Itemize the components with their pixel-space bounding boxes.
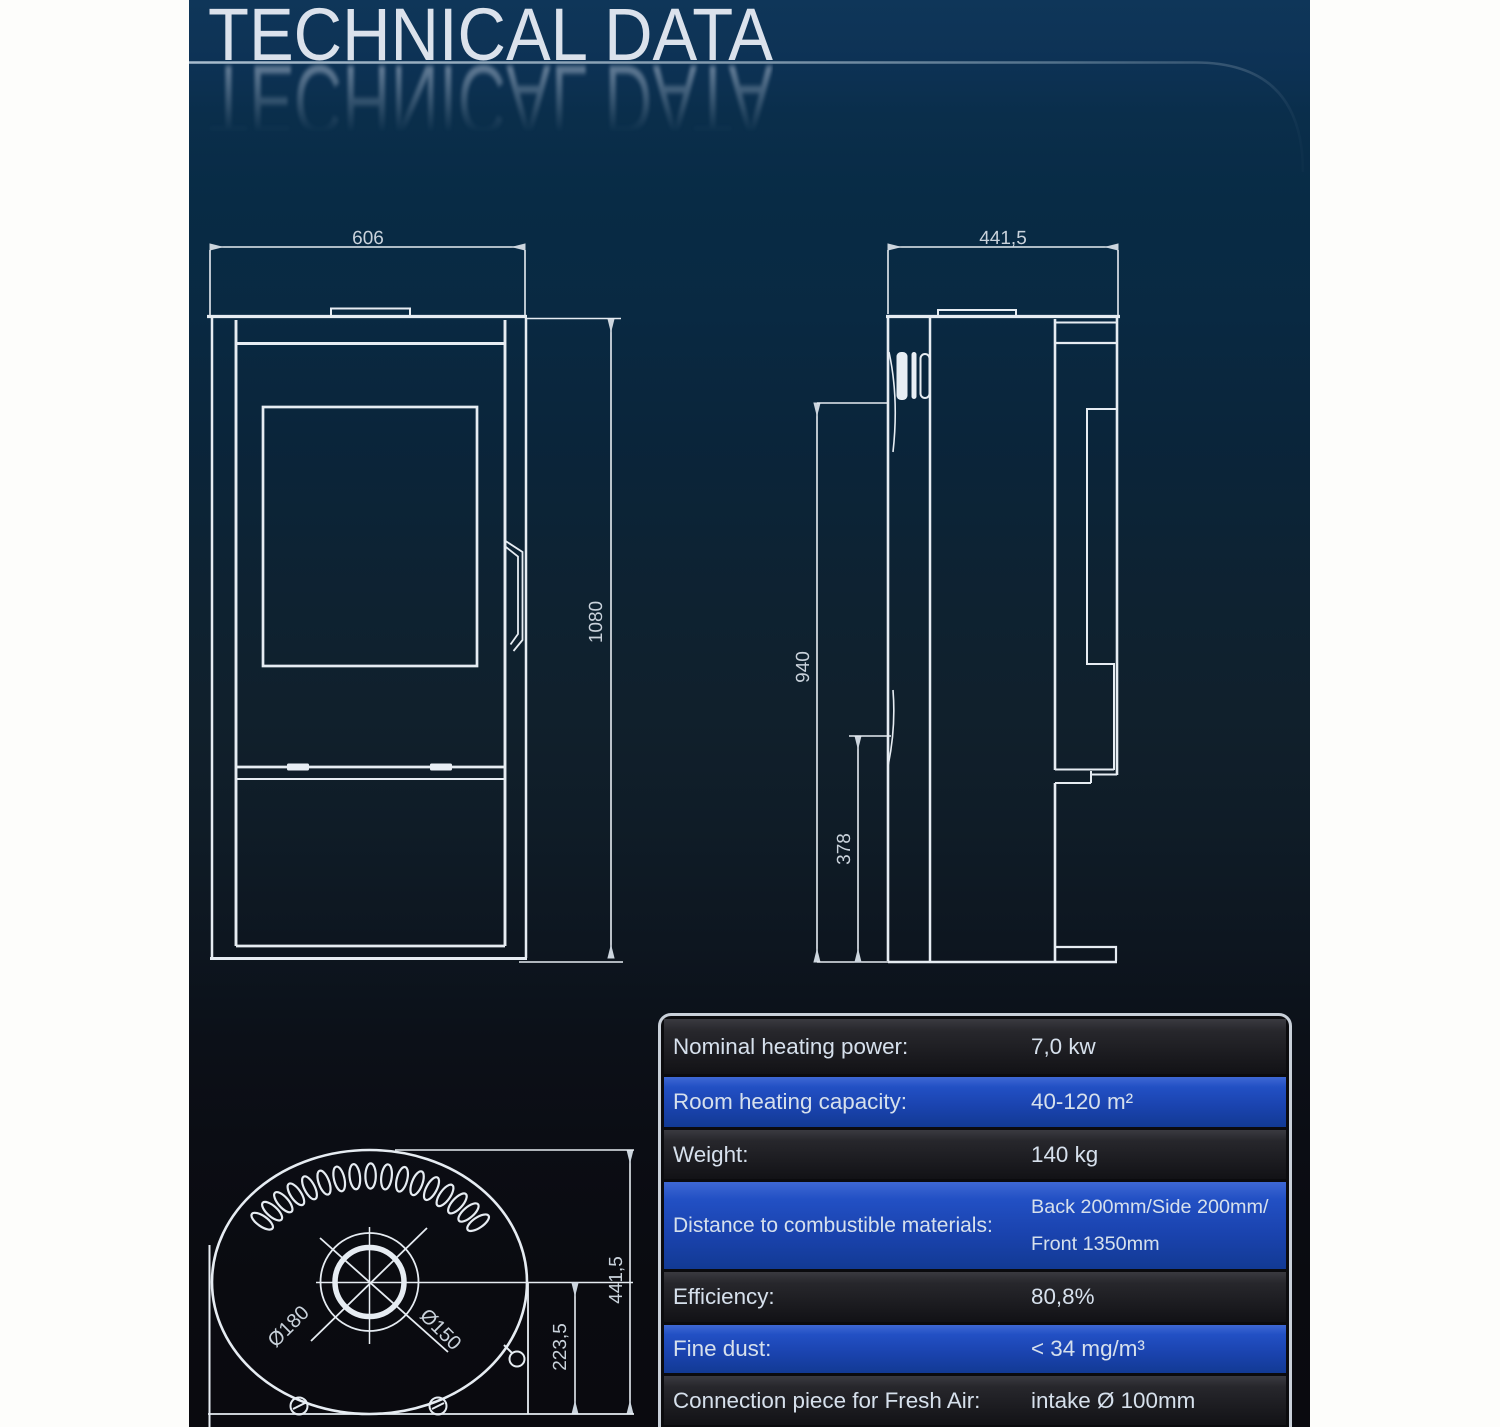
svg-text:441,5: 441,5: [979, 228, 1027, 249]
svg-text:940: 940: [793, 651, 814, 683]
svg-text:441,5: 441,5: [606, 1256, 627, 1304]
svg-text:606: 606: [352, 228, 384, 249]
svg-text:1080: 1080: [586, 601, 607, 643]
svg-text:223,5: 223,5: [550, 1323, 571, 1371]
svg-text:Ø180: Ø180: [264, 1302, 314, 1352]
svg-text:378: 378: [834, 833, 855, 865]
